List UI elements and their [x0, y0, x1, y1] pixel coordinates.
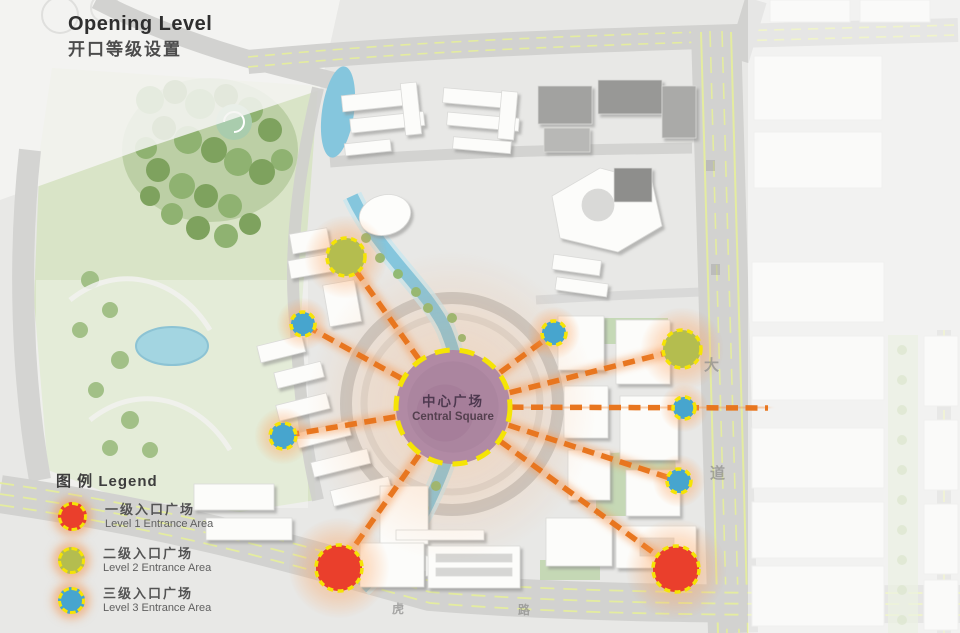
central-square-texture [417, 385, 474, 442]
entrance-node-level3 [673, 397, 695, 419]
legend-item-level1: 一级入口广场 Level 1 Entrance Area [56, 502, 213, 531]
legend-level2-en: Level 2 Entrance Area [103, 562, 211, 575]
entrance-node-level2 [663, 330, 701, 368]
legend-level1-en: Level 1 Entrance Area [105, 518, 213, 531]
right-district [748, 0, 960, 633]
basemap [0, 0, 960, 633]
legend-item-level2: 二级入口广场 Level 2 Entrance Area [56, 546, 211, 575]
entrance-node-level1 [316, 545, 362, 591]
legend-level1-zh: 一级入口广场 [105, 502, 213, 518]
level1-entrance-icon [58, 502, 87, 531]
entrance-node-level3 [542, 321, 566, 345]
entrance-node-level1 [653, 546, 699, 592]
entrance-node-level3 [291, 312, 315, 336]
title-chinese: 开口等级设置 [68, 39, 212, 60]
legend-heading: 图 例 Legend [56, 470, 276, 491]
legend-level2-zh: 二级入口广场 [103, 546, 211, 562]
legend-item-level3: 三级入口广场 Level 3 Entrance Area [56, 586, 211, 615]
park-lake [136, 327, 208, 365]
legend: 图 例 Legend 一级入口广场 Level 1 Entrance Area … [56, 470, 276, 499]
level2-entrance-icon [58, 547, 85, 574]
legend-level3-en: Level 3 Entrance Area [103, 602, 211, 615]
legend-level3-zh: 三级入口广场 [103, 586, 211, 602]
level3-entrance-icon [58, 587, 85, 614]
entrance-node-level3 [270, 423, 296, 449]
entrance-node-level3 [667, 469, 691, 493]
title-english: Opening Level [68, 12, 212, 37]
page-title: Opening Level 开口等级设置 [68, 12, 212, 60]
entrance-node-level2 [327, 238, 365, 276]
masterplan-canvas: Opening Level 开口等级设置 中心广场 Central Square… [0, 0, 960, 633]
